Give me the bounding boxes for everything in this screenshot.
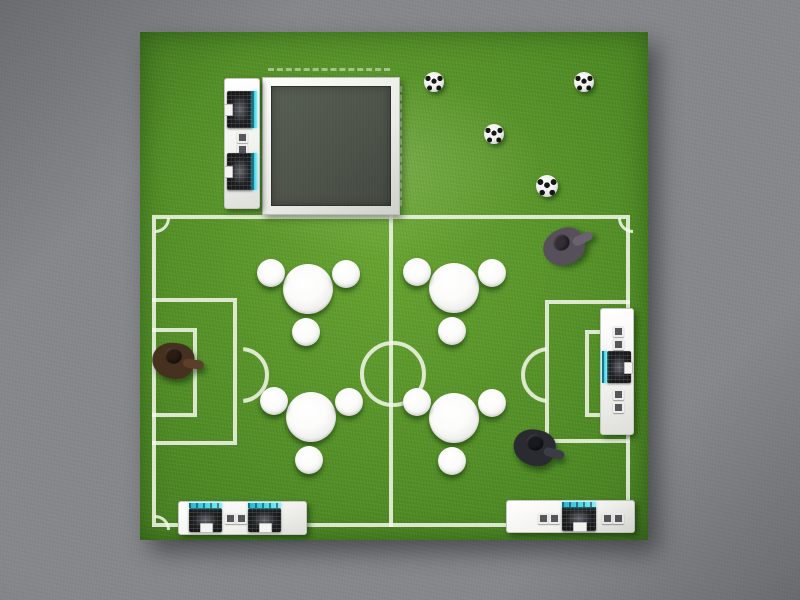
visitor-left	[144, 332, 207, 391]
counter-knob	[613, 389, 624, 400]
round-table	[286, 392, 336, 442]
counter-knob	[549, 513, 560, 524]
laptop-station	[562, 506, 596, 531]
laptop-label	[259, 523, 272, 533]
round-table	[283, 264, 333, 314]
laptop-screen-cyan	[252, 91, 257, 128]
counter-knob	[237, 132, 248, 143]
laptop-screen-cyan	[248, 503, 281, 508]
chalk-dashes-above-platform	[268, 68, 390, 71]
counter-right-edge	[600, 308, 634, 435]
laptop-screen-cyan	[252, 153, 257, 190]
counter-knob	[225, 513, 236, 524]
football-midfield	[536, 175, 558, 197]
counter-knob	[602, 513, 613, 524]
stool	[332, 260, 360, 288]
laptop-station	[227, 91, 253, 128]
stool	[478, 389, 506, 417]
stool	[478, 259, 506, 287]
counter-beside-platform	[224, 78, 260, 209]
counter-bottom-right	[506, 500, 635, 533]
football-at-goal-line	[484, 124, 504, 144]
laptop-station	[607, 351, 631, 383]
laptop-label	[573, 522, 587, 532]
laptop-label	[224, 166, 233, 178]
laptop-station	[189, 508, 222, 532]
booth-render-stage	[0, 0, 800, 600]
counter-knob	[613, 339, 624, 350]
laptop-label	[224, 104, 233, 116]
stool	[438, 317, 466, 345]
counter-knob	[613, 513, 624, 524]
stool	[403, 258, 431, 286]
counter-knob	[613, 326, 624, 337]
football-in-net-right	[574, 72, 594, 92]
counter-bottom-left	[178, 501, 307, 535]
counter-knob	[613, 402, 624, 413]
round-table	[429, 393, 479, 443]
laptop-station	[227, 153, 253, 190]
laptop-screen-cyan	[602, 351, 607, 383]
laptop-station	[248, 508, 281, 532]
laptop-label	[200, 523, 213, 533]
stool	[292, 318, 320, 346]
laptop-screen-cyan	[562, 502, 596, 507]
counter-knob	[538, 513, 549, 524]
stool	[403, 388, 431, 416]
stool	[260, 387, 288, 415]
platform-dark-surface	[271, 86, 391, 206]
football-in-net-left	[424, 72, 444, 92]
laptop-label	[624, 362, 633, 374]
stool	[257, 259, 285, 287]
stool	[335, 388, 363, 416]
round-table	[429, 263, 479, 313]
stool	[295, 446, 323, 474]
framed-platform	[262, 77, 400, 215]
laptop-screen-cyan	[189, 503, 222, 508]
counter-knob	[236, 513, 247, 524]
stool	[438, 447, 466, 475]
